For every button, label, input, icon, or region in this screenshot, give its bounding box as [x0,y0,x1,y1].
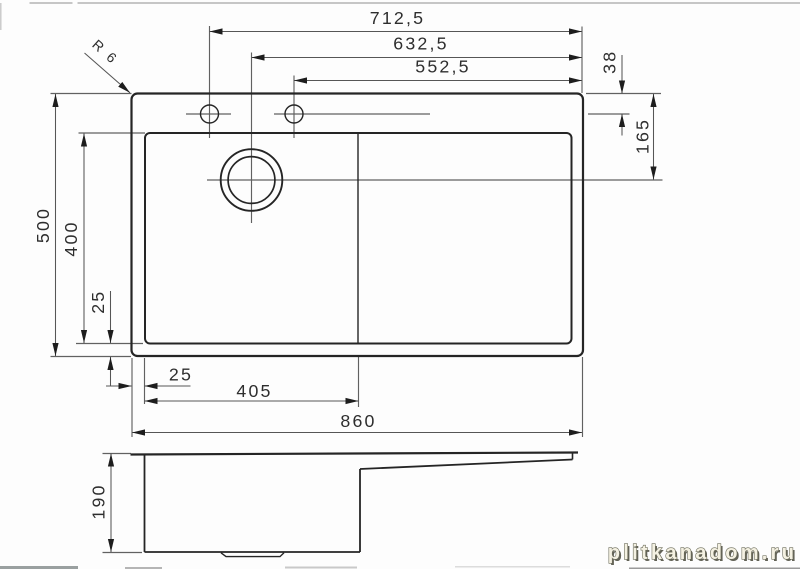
svg-text:500: 500 [33,207,53,243]
svg-text:712,5: 712,5 [370,8,426,28]
svg-text:25: 25 [169,365,193,385]
svg-text:plitkanadom.ru: plitkanadom.ru [608,542,798,564]
svg-text:632,5: 632,5 [393,34,449,54]
svg-text:25: 25 [88,290,108,314]
svg-text:165: 165 [633,118,653,154]
svg-text:190: 190 [89,483,109,519]
svg-text:405: 405 [236,381,272,401]
svg-text:860: 860 [340,411,376,431]
svg-text:38: 38 [600,50,620,74]
svg-text:552,5: 552,5 [415,57,471,77]
svg-text:400: 400 [61,220,81,256]
